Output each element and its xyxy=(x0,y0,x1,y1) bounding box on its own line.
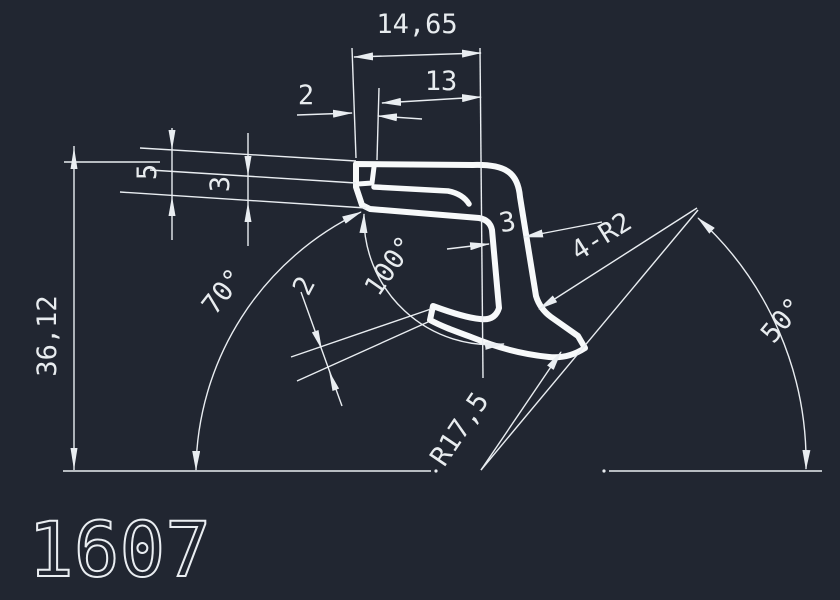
ground-line-break-dot-left xyxy=(434,469,437,472)
part-number-label: 1607 xyxy=(28,505,211,594)
dim-overall-height-label: 36,12 xyxy=(32,295,63,376)
dim-lip-outer-label: 5 xyxy=(132,164,163,180)
ground-line-break-dot-right xyxy=(602,469,605,472)
dim-hook-step-label: 2 xyxy=(298,80,314,111)
dim-top-width-label: 14,65 xyxy=(376,9,457,40)
cad-drawing-canvas: 14,65 13 2 5 3 36,12 70° xyxy=(0,0,840,600)
dim-lip-inner-label: 3 xyxy=(205,176,236,192)
cad-viewport: 14,65 13 2 5 3 36,12 70° xyxy=(0,0,840,600)
dim-top-inner-width-label: 13 xyxy=(425,66,458,97)
